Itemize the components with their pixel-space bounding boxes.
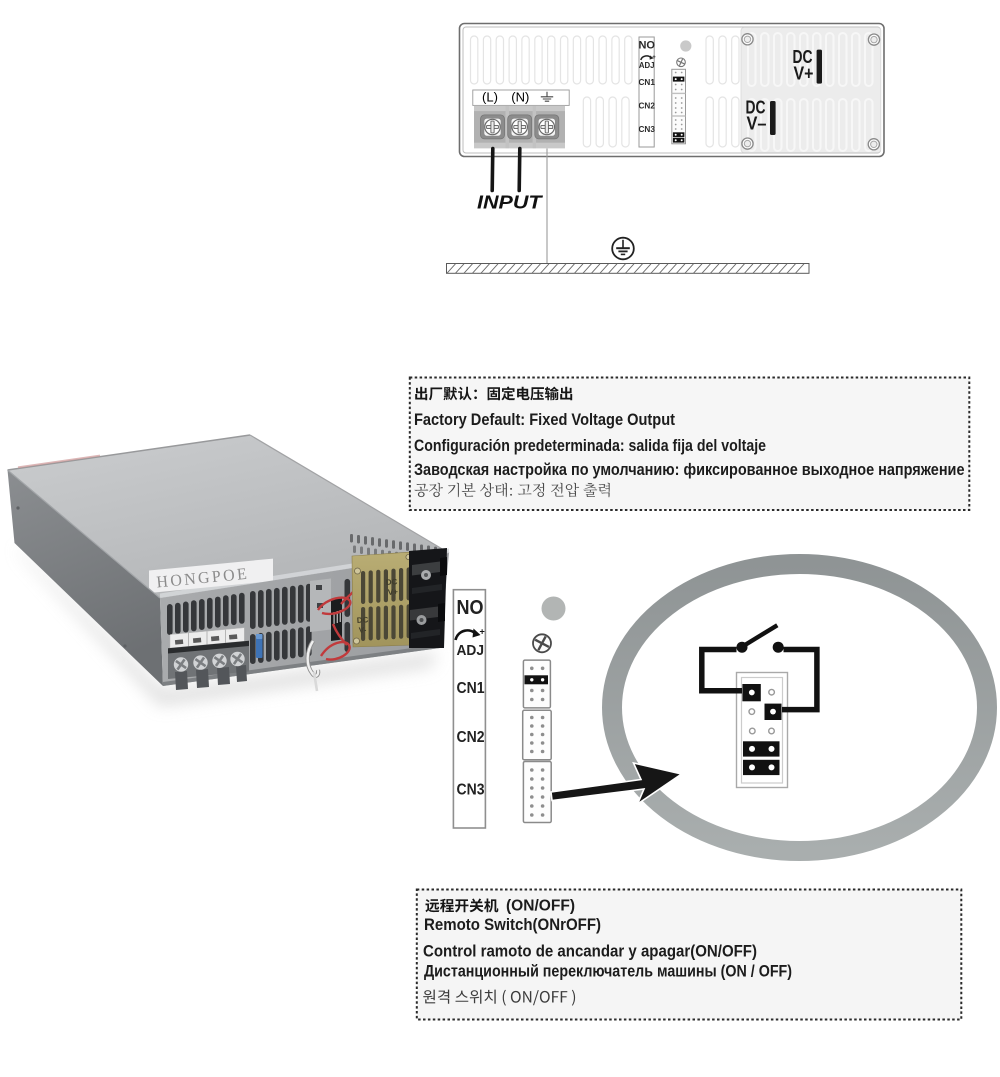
svg-text:NO: NO xyxy=(457,597,484,619)
svg-text:V–: V– xyxy=(747,114,767,134)
svg-text:+: + xyxy=(480,627,485,637)
svg-text:DC: DC xyxy=(357,615,369,625)
svg-text:(N): (N) xyxy=(511,89,529,104)
svg-text:(ON/OFF): (ON/OFF) xyxy=(506,898,575,915)
svg-text:Configuración predeterminada:: Configuración predeterminada: salida fij… xyxy=(414,437,766,455)
svg-text:CN1: CN1 xyxy=(457,680,485,697)
svg-text:V-: V- xyxy=(359,625,368,635)
svg-text:ADJ: ADJ xyxy=(639,61,655,70)
svg-text:V+: V+ xyxy=(388,587,399,597)
svg-text:CN1: CN1 xyxy=(639,78,656,87)
svg-text:Remoto Switch(ONrOFF): Remoto Switch(ONrOFF) xyxy=(424,916,601,934)
svg-text:(L): (L) xyxy=(482,89,498,104)
svg-text:Control ramoto de ancandar y a: Control ramoto de ancandar y apagar(ON/O… xyxy=(423,943,757,961)
svg-text:CN3: CN3 xyxy=(457,781,485,798)
svg-text:ADJ: ADJ xyxy=(457,642,485,659)
svg-text:Дистанционный переключатель ма: Дистанционный переключатель машины (ON /… xyxy=(424,963,792,981)
svg-text:Factory Default: Fixed Voltage: Factory Default: Fixed Voltage Output xyxy=(414,411,675,429)
svg-text:NO: NO xyxy=(638,39,655,51)
svg-text:CN2: CN2 xyxy=(457,729,485,746)
svg-text:INPUT: INPUT xyxy=(477,193,544,213)
svg-text:Заводская настройка по умолчан: Заводская настройка по умолчанию: фиксир… xyxy=(414,461,965,479)
svg-text:DC: DC xyxy=(386,577,398,587)
svg-text:V+: V+ xyxy=(794,64,814,84)
svg-text:CN2: CN2 xyxy=(639,101,656,110)
svg-text:CN3: CN3 xyxy=(639,125,656,134)
